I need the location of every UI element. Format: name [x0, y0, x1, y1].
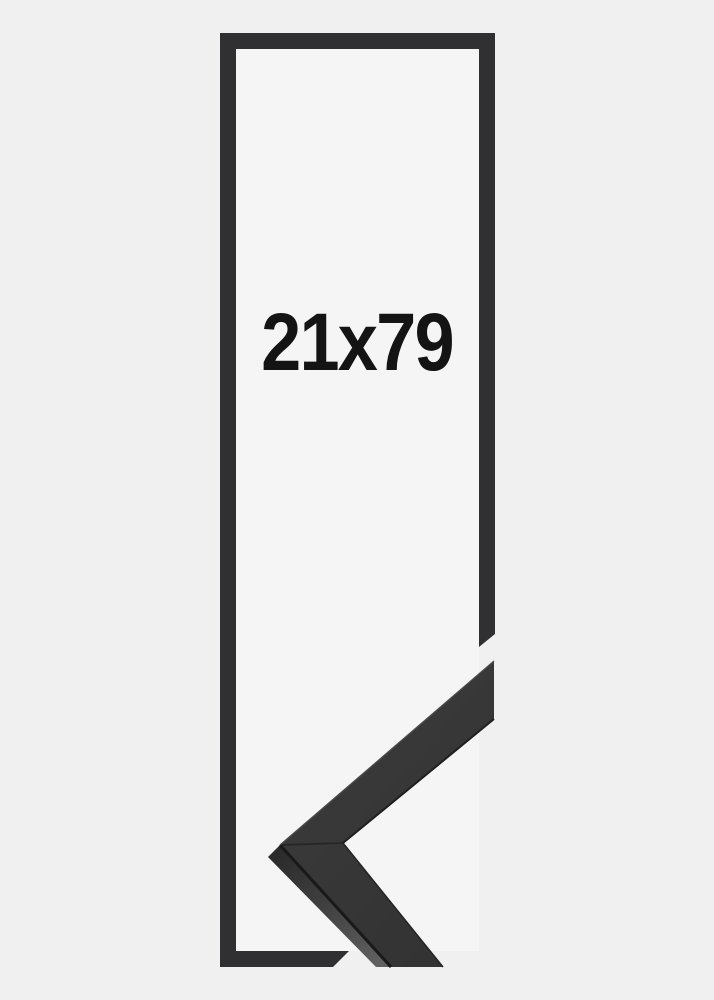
frame-outline-bottom-bar — [220, 951, 349, 967]
product-image: 21x79 — [0, 0, 714, 1000]
frame-outline-left-bar — [220, 33, 236, 967]
size-label: 21x79 — [261, 302, 453, 384]
frame-outline-top-bar — [220, 33, 495, 49]
frame-illustration — [0, 0, 714, 1000]
frame-outline-right-bar — [479, 33, 495, 647]
